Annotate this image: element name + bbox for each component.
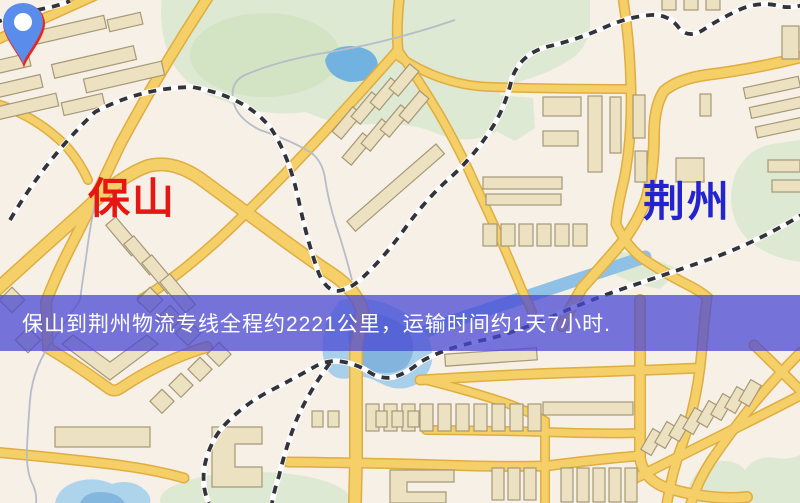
- map-canvas: [0, 0, 800, 503]
- destination-city-label: 荆州: [643, 181, 731, 223]
- destination-pin[interactable]: [0, 0, 46, 69]
- map-screenshot: 保山到荆州物流专线全程约2221公里，运输时间约1天7小时. 保山 荆州: [0, 0, 800, 503]
- route-banner: 保山到荆州物流专线全程约2221公里，运输时间约1天7小时.: [0, 295, 800, 351]
- origin-city-label: 保山: [88, 178, 176, 220]
- map-pin-icon: [0, 0, 46, 64]
- route-banner-text: 保山到荆州物流专线全程约2221公里，运输时间约1天7小时.: [0, 308, 611, 338]
